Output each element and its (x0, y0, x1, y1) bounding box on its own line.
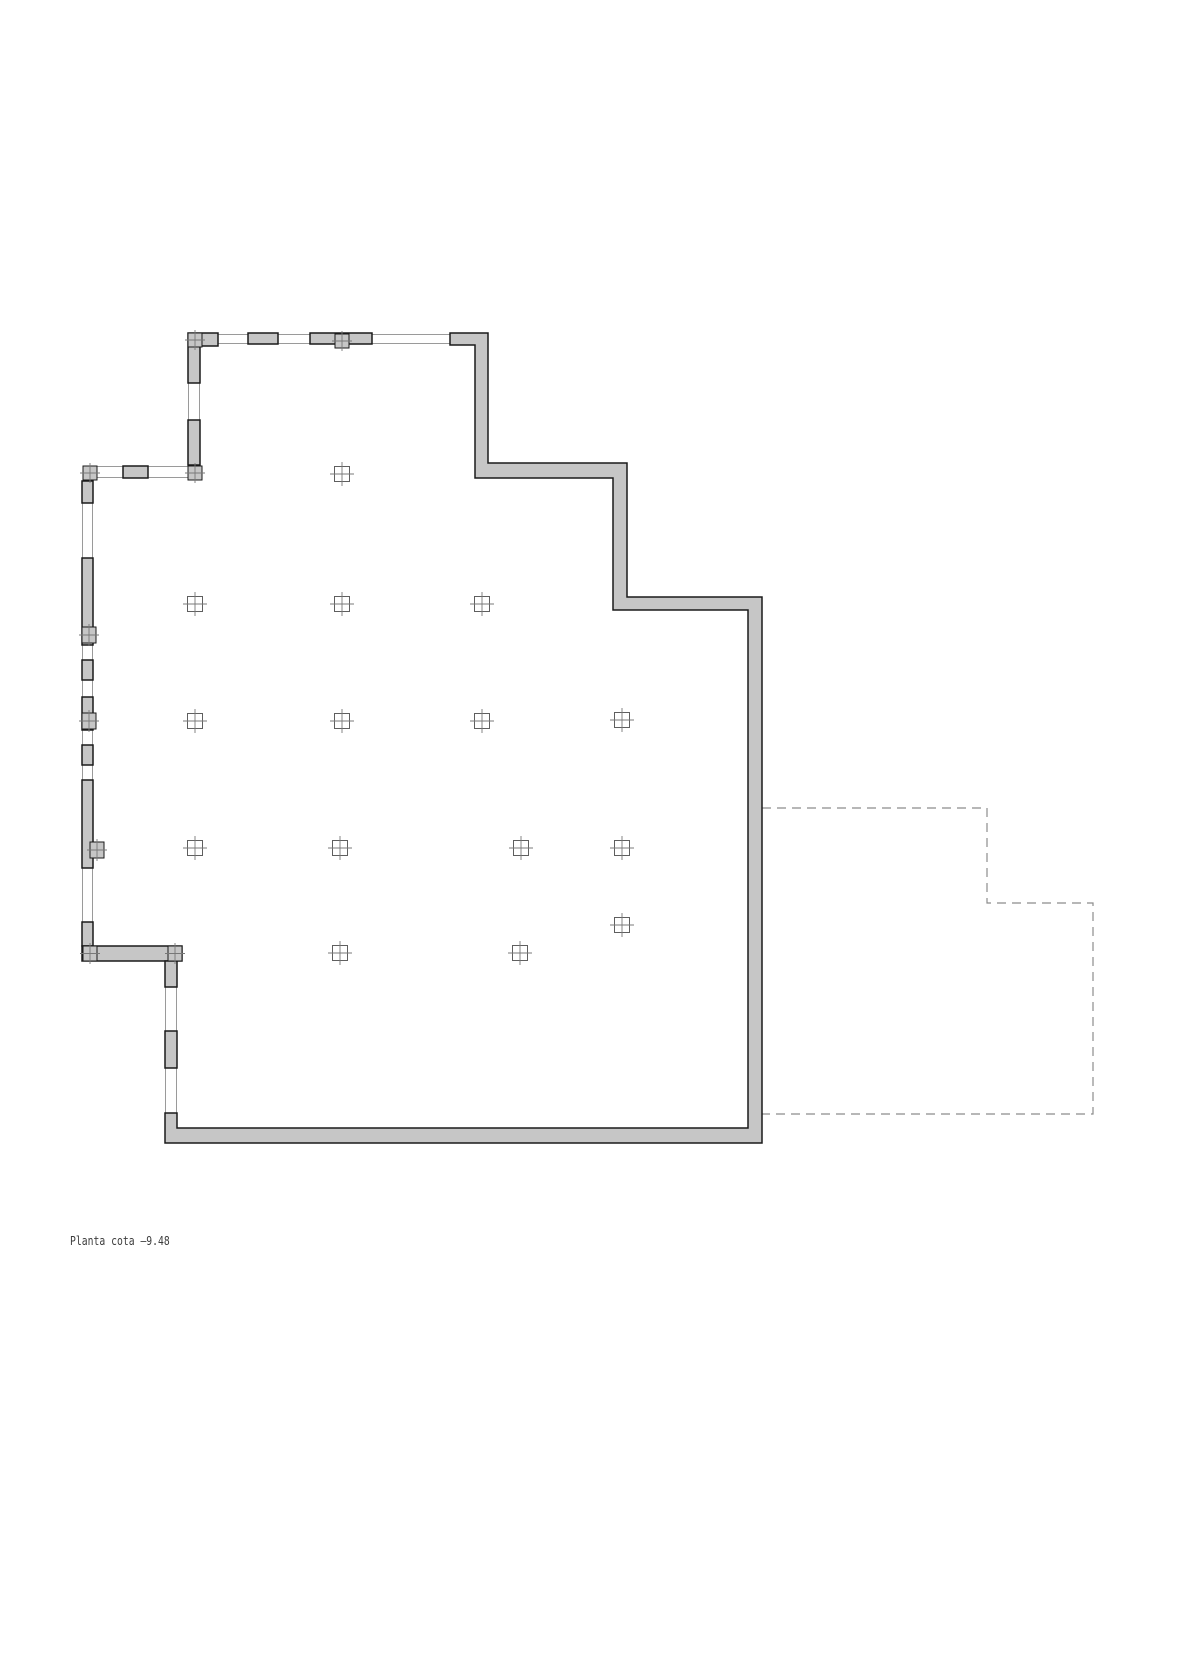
wall-segment (165, 1031, 177, 1068)
wall-segment (188, 420, 200, 465)
wall-segment (82, 481, 93, 503)
plan-caption-label: Planta cota –9.48 (70, 1233, 170, 1248)
wall-segment (82, 745, 93, 765)
wall-segment (123, 466, 148, 478)
wall-segment (248, 333, 278, 344)
wall-segment (165, 961, 177, 987)
excavation-dashed-outline (762, 808, 1093, 1114)
floor-plan-canvas (0, 0, 1200, 1664)
floor-plan-page: Planta cota –9.48 (0, 0, 1200, 1664)
wall-segment (82, 922, 93, 946)
wall (165, 333, 762, 1143)
wall-segment (82, 660, 93, 680)
